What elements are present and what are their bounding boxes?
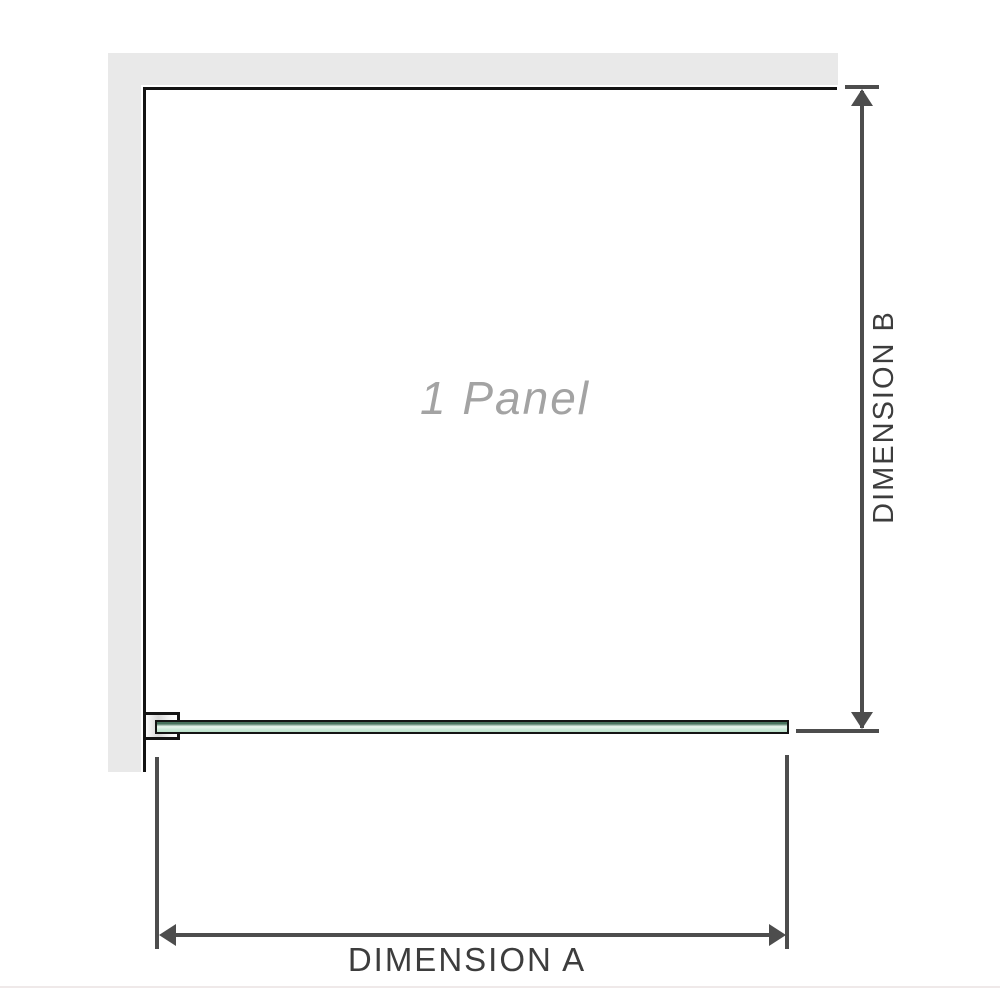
- wall-top: [108, 53, 838, 85]
- panel-count-label: 1 Panel: [360, 368, 650, 428]
- bottom-divider: [0, 986, 1000, 988]
- dimension-b-line: [860, 91, 864, 728]
- dimension-a-extension-right: [785, 755, 789, 949]
- arrow-down-icon: [851, 712, 873, 729]
- panel-outline-left: [143, 87, 146, 772]
- dimension-b-tick-bottom: [796, 729, 879, 733]
- glass-panel-bar: [155, 720, 789, 734]
- arrow-up-icon: [851, 89, 873, 106]
- dimension-b-label: DIMENSION B: [867, 257, 901, 577]
- dimension-a-label: DIMENSION A: [322, 941, 612, 981]
- dimension-a-line: [163, 933, 782, 937]
- arrow-left-icon: [159, 924, 176, 946]
- panel-outline-top: [143, 87, 837, 90]
- dimension-a-extension-left: [155, 757, 159, 949]
- arrow-right-icon: [769, 924, 786, 946]
- shower-panel-diagram: 1 Panel DIMENSION B DIMENSION A: [0, 0, 1000, 1000]
- wall-left: [108, 53, 141, 772]
